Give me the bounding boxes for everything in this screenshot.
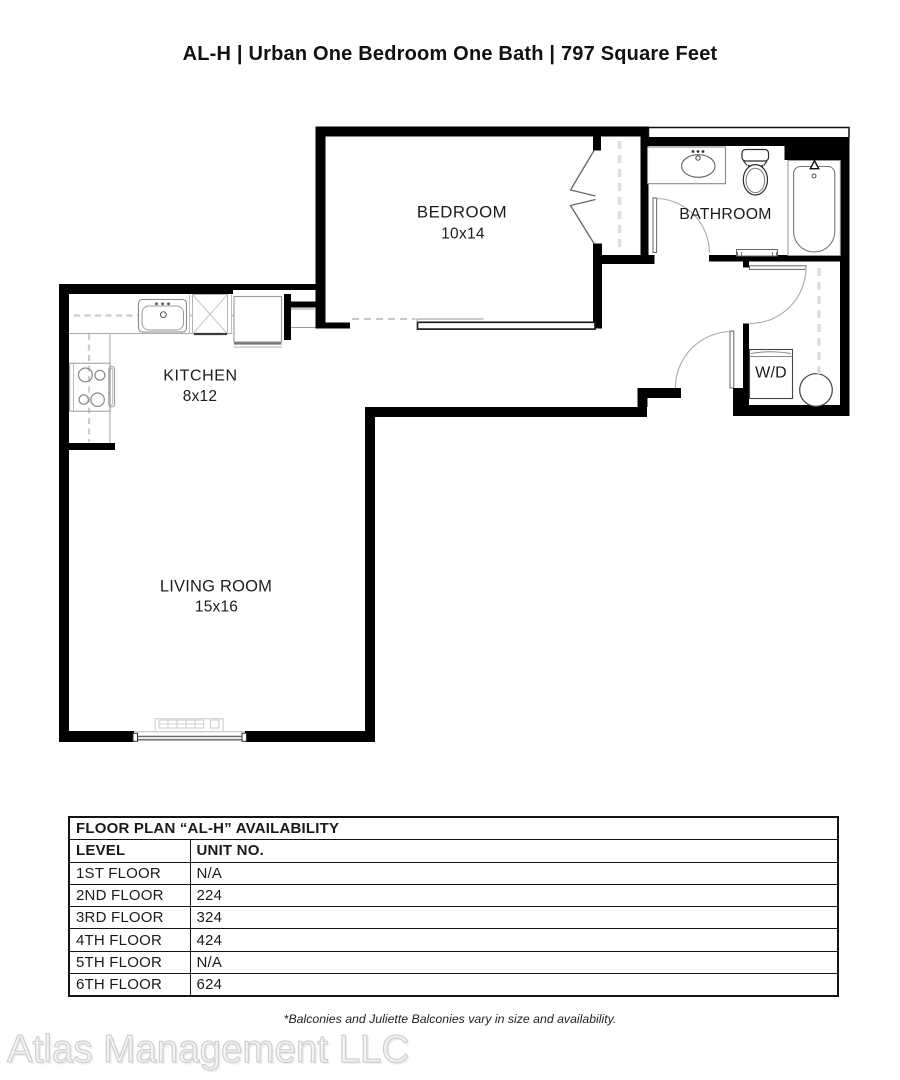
- svg-text:15x16: 15x16: [195, 599, 238, 616]
- svg-text:LIVING ROOM: LIVING ROOM: [160, 578, 272, 596]
- svg-text:W/D: W/D: [755, 365, 787, 382]
- svg-text:8x12: 8x12: [183, 388, 217, 405]
- svg-text:10x14: 10x14: [441, 226, 485, 243]
- svg-text:BATHROOM: BATHROOM: [679, 206, 772, 223]
- svg-text:KITCHEN: KITCHEN: [163, 368, 237, 385]
- svg-text:BEDROOM: BEDROOM: [417, 203, 507, 222]
